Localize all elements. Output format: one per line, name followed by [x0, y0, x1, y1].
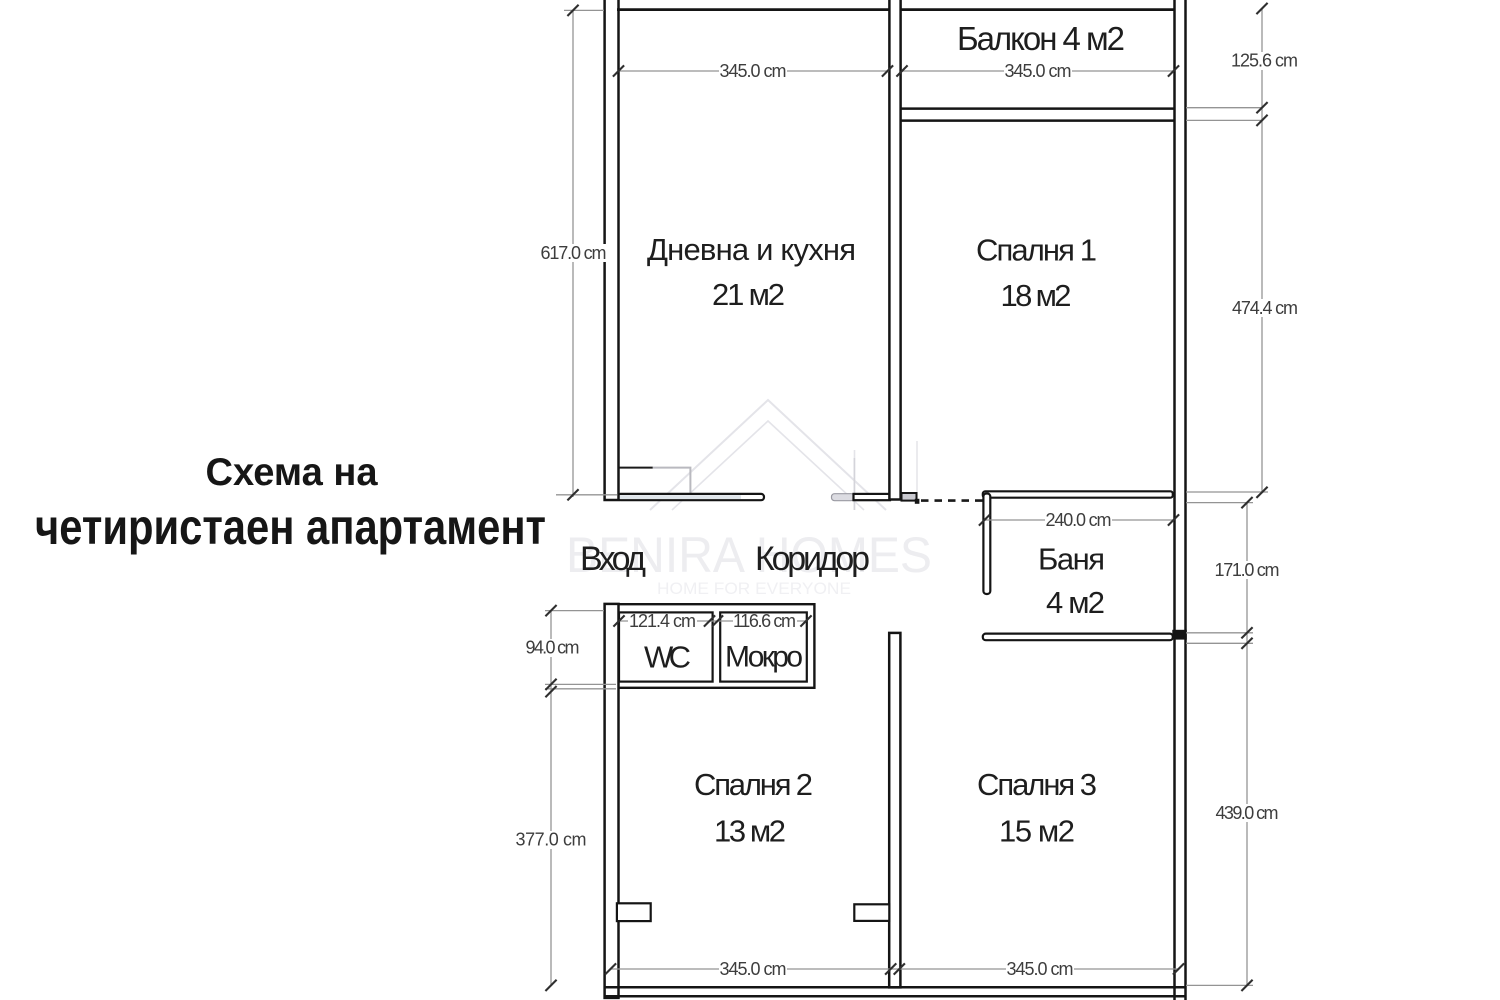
svg-text:Схема на: Схема на: [206, 451, 378, 494]
svg-text:21 м2: 21 м2: [712, 277, 785, 312]
svg-text:Спалня 2: Спалня 2: [694, 767, 813, 802]
svg-text:345.0 cm: 345.0 cm: [1005, 61, 1072, 81]
svg-text:13 м2: 13 м2: [714, 814, 786, 849]
svg-text:345.0 cm: 345.0 cm: [720, 959, 787, 979]
svg-text:4 м2: 4 м2: [1046, 585, 1105, 620]
svg-text:Мокро: Мокро: [725, 641, 803, 674]
svg-text:121.4 cm: 121.4 cm: [629, 611, 696, 631]
svg-text:Баня: Баня: [1038, 542, 1105, 577]
svg-text:Вход: Вход: [580, 540, 646, 578]
svg-text:474.4 cm: 474.4 cm: [1232, 298, 1298, 318]
svg-text:377.0 cm: 377.0 cm: [516, 830, 587, 850]
svg-text:171.0 cm: 171.0 cm: [1215, 560, 1280, 580]
svg-text:94.0 cm: 94.0 cm: [526, 638, 580, 658]
svg-text:617.0 cm: 617.0 cm: [541, 243, 607, 263]
svg-text:Спалня 3: Спалня 3: [977, 767, 1097, 802]
svg-text:15 м2: 15 м2: [999, 814, 1075, 849]
svg-text:четиристаен апартамент: четиристаен апартамент: [35, 499, 546, 555]
svg-text:125.6 cm: 125.6 cm: [1231, 51, 1298, 71]
svg-text:Спалня 1: Спалня 1: [976, 233, 1097, 268]
svg-text:Балкон 4 м2: Балкон 4 м2: [957, 20, 1125, 57]
svg-text:240.0 cm: 240.0 cm: [1046, 510, 1112, 530]
svg-text:Дневна и кухня: Дневна и кухня: [647, 232, 856, 267]
svg-text:WC: WC: [644, 640, 691, 675]
svg-text:345.0 cm: 345.0 cm: [720, 61, 787, 81]
svg-text:439.0 cm: 439.0 cm: [1216, 803, 1279, 823]
svg-text:18 м2: 18 м2: [1001, 278, 1072, 313]
svg-text:345.0 cm: 345.0 cm: [1007, 959, 1074, 979]
svg-text:116.6 cm: 116.6 cm: [733, 611, 796, 631]
svg-text:Коридор: Коридор: [755, 540, 870, 578]
svg-text:HOME FOR EVERYONE: HOME FOR EVERYONE: [657, 580, 851, 598]
